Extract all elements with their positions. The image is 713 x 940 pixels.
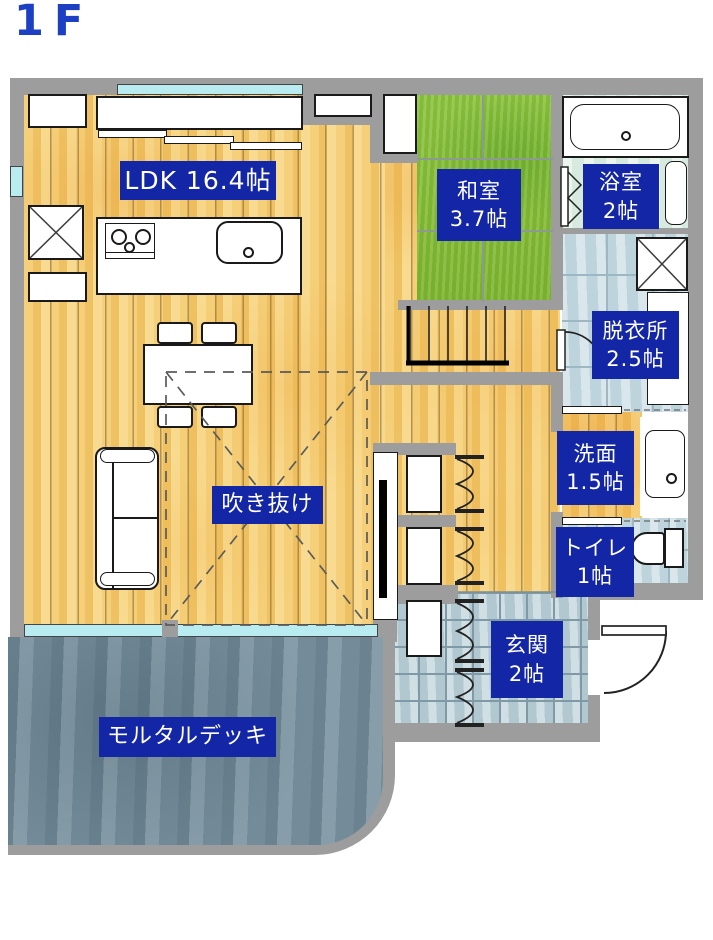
dining-chair — [157, 322, 193, 344]
senmen-name: 洗面 — [574, 440, 618, 468]
senmen-size: 1.5帖 — [566, 468, 624, 496]
deck-sliding-window — [24, 624, 378, 637]
wall-right — [688, 78, 703, 600]
sofa-cushion-divider — [114, 517, 157, 519]
side-window — [10, 166, 23, 197]
deck-label-text: モルタルデッキ — [107, 722, 268, 752]
stove-grill — [105, 252, 155, 259]
floor-title: 1F — [14, 0, 93, 46]
room-label-fukinuke: 吹き抜け — [212, 486, 323, 524]
sofa-armrest-bottom — [100, 572, 155, 586]
wall-stairs-bottom — [370, 372, 562, 385]
counter-slide-1 — [98, 130, 167, 138]
side-cabinet-bottom — [28, 272, 87, 302]
ldk-label-text: LDK 16.4帖 — [124, 164, 271, 198]
bathtub-drain — [621, 131, 631, 141]
vanity-sink — [645, 430, 685, 498]
dining-chair — [201, 322, 237, 344]
room-label-ldk: LDK 16.4帖 — [120, 161, 276, 200]
floor-plan: LDK 16.4帖 和室 3.7帖 浴室 2帖 脱衣所 2.5帖 洗面 1.5帖… — [0, 0, 713, 940]
bathroom-size: 2帖 — [603, 197, 639, 225]
stove-burner-left — [111, 229, 127, 245]
side-cabinet-top — [28, 94, 87, 128]
room-label-toilet: トイレ 1帖 — [556, 527, 634, 597]
room-label-deck: モルタルデッキ — [99, 717, 276, 757]
wall-entry-upper — [588, 598, 600, 640]
dining-chair — [157, 406, 193, 428]
wall-closet-mid — [396, 515, 456, 527]
sink-drain — [243, 247, 254, 258]
genkan-size: 2帖 — [509, 660, 545, 688]
sofa-armrest-top — [100, 449, 155, 463]
wall-washitsu-bottom — [398, 300, 562, 310]
bathroom-name: 浴室 — [599, 168, 643, 196]
room-label-bathroom: 浴室 2帖 — [583, 164, 659, 229]
dining-chair — [201, 406, 237, 428]
washitsu-name: 和室 — [457, 177, 501, 205]
fukinuke-label-text: 吹き抜け — [221, 490, 313, 520]
room-label-genkan: 玄関 2帖 — [491, 621, 563, 698]
tall-storage — [383, 94, 417, 154]
datsuijo-name: 脱衣所 — [603, 317, 669, 345]
toilet-tank — [664, 528, 684, 568]
vanity-drain — [666, 473, 677, 484]
closet-middle — [406, 527, 442, 585]
room-label-datsuijo: 脱衣所 2.5帖 — [592, 311, 679, 379]
shoe-closet — [406, 600, 442, 657]
closet-upper — [406, 455, 442, 513]
genkan-name: 玄関 — [505, 631, 549, 659]
datsuijo-size: 2.5帖 — [606, 345, 664, 373]
toilet-name: トイレ — [562, 534, 628, 562]
wall-genkan-bottom — [370, 723, 600, 742]
kitchen-window — [117, 84, 303, 95]
counter-slide-3 — [230, 142, 302, 150]
bath-bench — [665, 161, 687, 225]
kitchen-counter — [96, 96, 303, 130]
hall-cabinet-panel — [379, 480, 387, 598]
floor-title-text: 1F — [14, 0, 93, 46]
stove-burner-right — [135, 229, 151, 245]
washitsu-size: 3.7帖 — [450, 205, 508, 233]
dining-table — [143, 344, 253, 405]
toilet-bowl — [631, 532, 665, 565]
upper-cabinet — [314, 94, 372, 117]
pocket-door-senmen — [562, 406, 622, 414]
counter-slide-2 — [164, 136, 234, 144]
pocket-door-toilet — [562, 517, 622, 525]
wall-right-column-b — [551, 372, 563, 432]
bathtub-inner — [570, 104, 680, 150]
toilet-size: 1帖 — [577, 562, 613, 590]
deck-window-mullion — [162, 620, 178, 637]
room-label-senmen: 洗面 1.5帖 — [557, 431, 634, 505]
refrigerator-space — [28, 205, 84, 260]
room-label-washitsu: 和室 3.7帖 — [437, 169, 521, 241]
entry-door — [602, 626, 666, 693]
washing-machine-space — [636, 237, 688, 291]
